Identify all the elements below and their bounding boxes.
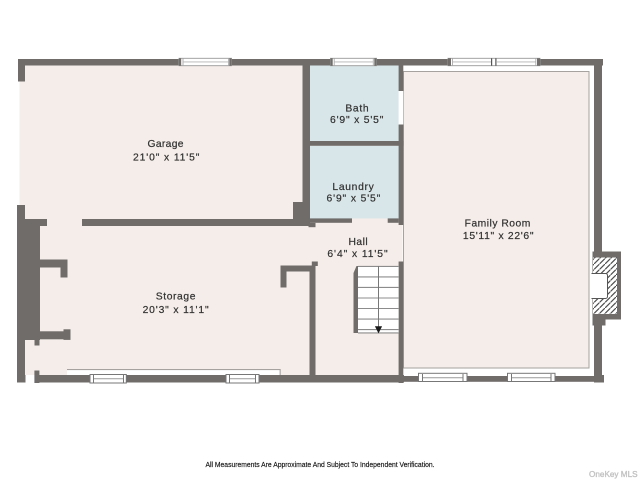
svg-text:6'9" x 5'5": 6'9" x 5'5" [330, 115, 384, 126]
svg-text:Bath: Bath [345, 103, 369, 114]
svg-text:21'0" x 11'5": 21'0" x 11'5" [133, 152, 200, 163]
svg-text:Family Room: Family Room [465, 218, 531, 229]
svg-text:Laundry: Laundry [332, 182, 374, 193]
svg-text:Storage: Storage [156, 291, 196, 302]
svg-text:All Measurements Are Approxima: All Measurements Are Approximate And Sub… [206, 460, 435, 469]
svg-text:6'4" x 11'5": 6'4" x 11'5" [327, 249, 388, 260]
svg-text:20'3" x 11'1": 20'3" x 11'1" [143, 305, 209, 316]
svg-text:Garage: Garage [148, 139, 184, 150]
svg-text:Hall: Hall [349, 237, 368, 248]
svg-text:6'9" x 5'5": 6'9" x 5'5" [327, 194, 381, 205]
svg-text:15'11" x 22'6": 15'11" x 22'6" [463, 231, 534, 242]
svg-text:OneKey MLS: OneKey MLS [589, 469, 638, 479]
